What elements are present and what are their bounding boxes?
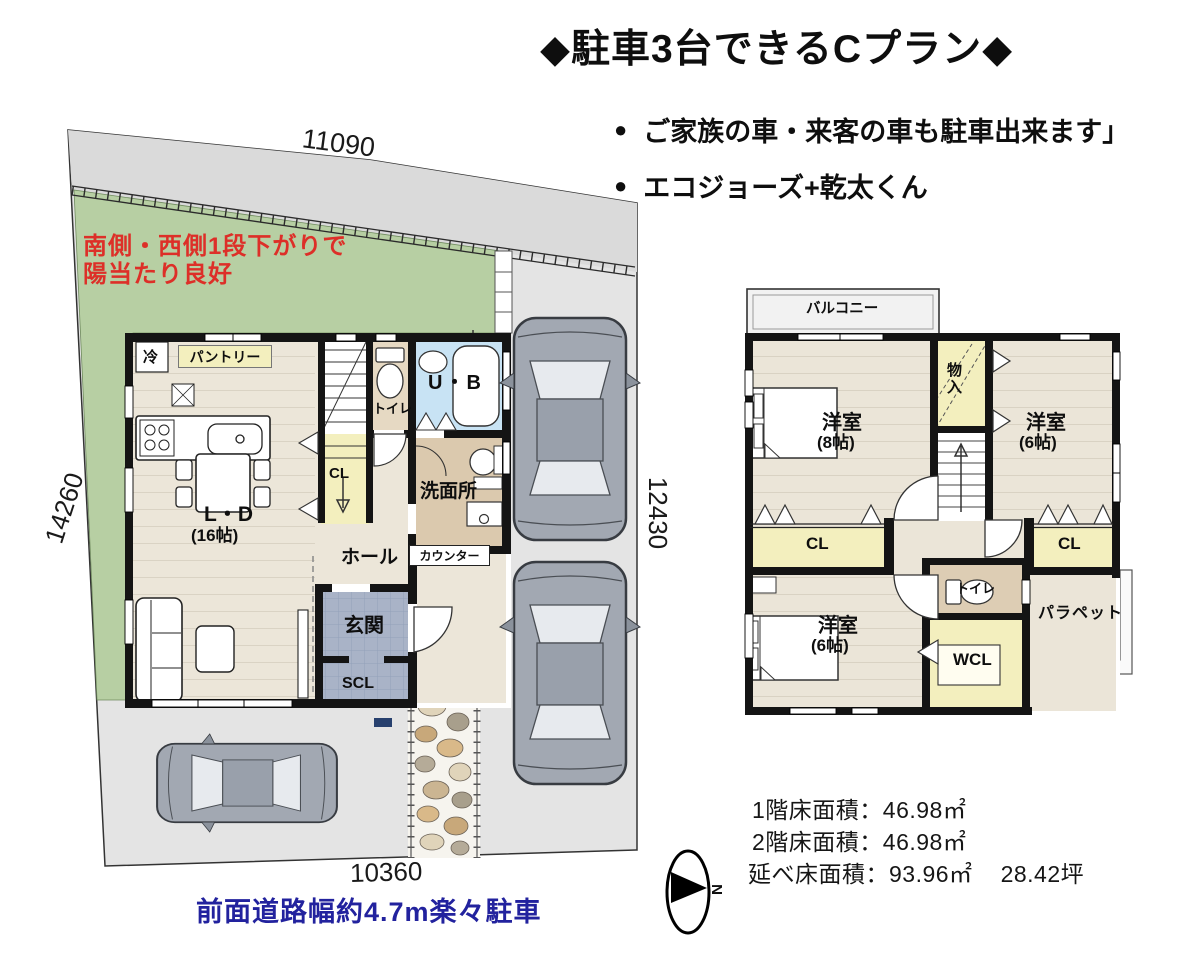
area-total: 延べ床面積：93.96㎡28.42坪 xyxy=(748,863,1084,886)
label-shoe-closet: SCL xyxy=(342,676,374,692)
road-note: 前面道路幅約4.7m楽々駐車 xyxy=(196,899,542,926)
label-parapet: パラペット xyxy=(1038,606,1123,622)
grade-note: 南側・西側1段下がりで 陽当たり良好 xyxy=(83,233,347,289)
dimension-right: 12430 xyxy=(645,477,671,549)
label-room6a: 洋室 xyxy=(1026,413,1066,433)
label-walkin-closet: WCL xyxy=(953,651,992,668)
grade-note-line2: 陽当たり良好 xyxy=(83,261,347,289)
label-closet-left: CL xyxy=(806,535,829,552)
label-stair-closet: CL xyxy=(329,466,349,481)
area-total-tsubo: 28.42坪 xyxy=(1001,861,1085,887)
garden-fence xyxy=(495,251,512,333)
page-title: ◆駐車3台できるCプラン◆ xyxy=(540,30,1013,69)
label-living: L・D xyxy=(204,504,253,525)
toilet1-fixture xyxy=(376,348,404,398)
label-bath: U・B xyxy=(428,373,483,393)
tv-board xyxy=(298,610,308,698)
bullet-dot-icon: ● xyxy=(614,175,627,197)
grade-note-line1: 南側・西側1段下がりで xyxy=(83,233,347,261)
car-right-bottom xyxy=(500,562,640,784)
dimension-bottom: 10360 xyxy=(350,858,423,886)
area-total-m2: 延べ床面積：93.96㎡ xyxy=(748,861,973,887)
label-toilet-2f: トイレ xyxy=(956,582,995,595)
label-room8: 洋室 xyxy=(822,413,862,433)
label-pantry: パントリー xyxy=(178,345,272,368)
label-counter: カウンター xyxy=(409,545,490,566)
floorplan-flyer: ◆駐車3台できるCプラン◆ ● ご家族の車・来客の車も駐車出来ます」 ● エコジ… xyxy=(0,0,1200,970)
mailbox-mark xyxy=(374,718,392,727)
label-entrance: 玄関 xyxy=(344,616,384,636)
wall-cabinet xyxy=(172,384,194,406)
label-hall: ホール xyxy=(341,548,398,567)
label-closet-right: CL xyxy=(1058,535,1081,552)
label-room6b: 洋室 xyxy=(818,616,858,636)
feature-bullet-1-text: ご家族の車・来客の車も駐車出来ます」 xyxy=(643,110,1129,149)
label-toilet-1f: トイレ xyxy=(373,402,412,415)
feature-bullet-1: ● ご家族の車・来客の車も駐車出来ます」 xyxy=(614,110,1129,149)
area-2f: 2階床面積：46.98㎡ xyxy=(752,831,966,854)
feature-bullet-2-text: エコジョーズ+乾太くん xyxy=(643,166,927,205)
feature-bullet-2: ● エコジョーズ+乾太くん xyxy=(614,166,928,205)
area-1f: 1階床面積：46.98㎡ xyxy=(752,799,966,822)
label-room6b-size: (6帖) xyxy=(811,637,849,654)
compass-icon xyxy=(667,851,709,933)
label-fridge: 冷 xyxy=(143,350,158,365)
label-balcony: バルコニー xyxy=(806,302,878,317)
compass-north-label: N xyxy=(709,884,724,895)
label-washroom: 洗面所 xyxy=(420,482,477,501)
car-right-top xyxy=(500,318,640,540)
car-left xyxy=(157,734,337,832)
floor2-plan xyxy=(745,289,1132,715)
label-storage: 物入 xyxy=(946,362,961,396)
label-room6a-size: (6帖) xyxy=(1019,434,1057,451)
bullet-dot-icon: ● xyxy=(614,119,627,141)
label-living-size: (16帖) xyxy=(191,527,238,544)
label-room8-size: (8帖) xyxy=(817,434,855,451)
